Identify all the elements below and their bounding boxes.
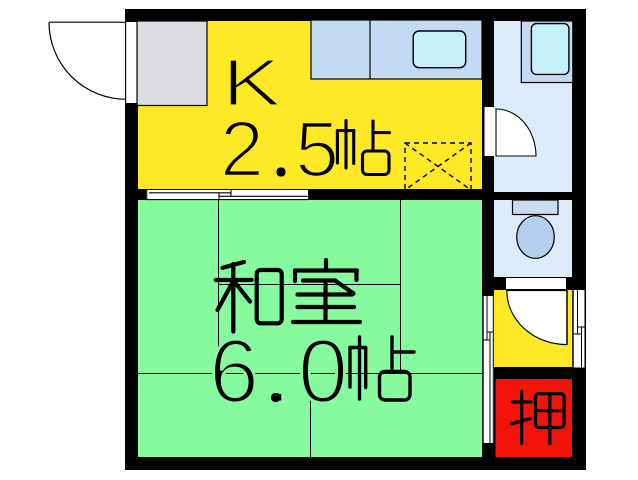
svg-text:6.0: 6.0 [209, 322, 348, 422]
svg-text:2.5: 2.5 [220, 104, 339, 193]
